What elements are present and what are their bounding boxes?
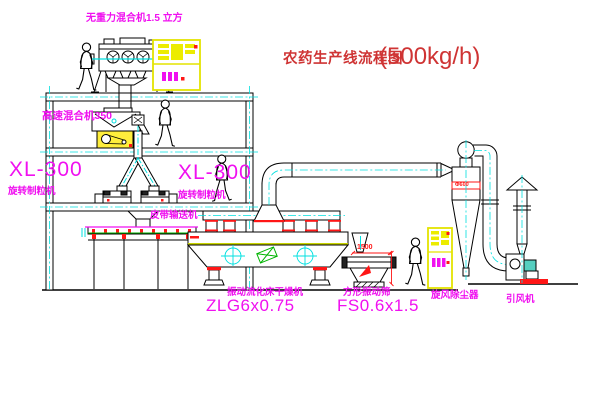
fluid-bed-dryer <box>188 232 348 285</box>
granulator-left <box>95 186 131 203</box>
label-granulator-left-model: XL-300 <box>9 159 83 180</box>
person-floor2 <box>155 100 175 146</box>
label-granulator-right-model: XL-300 <box>178 162 252 183</box>
induced-draft-fan <box>506 254 548 284</box>
belt-conveyor <box>82 227 198 289</box>
label-granulator-left-name: 旋转制粒机 <box>8 187 56 197</box>
person-ground <box>405 238 425 285</box>
label-gravity-free-mixer: 无重力混合机1.5 立方 <box>86 14 183 24</box>
control-cabinet-top <box>153 40 200 90</box>
label-cyclone: 旋风除尘器 <box>431 291 479 301</box>
granulator-right <box>141 186 177 203</box>
label-high-speed-mixer: 高速混合机350 <box>42 111 112 122</box>
label-belt-conveyor: 皮带输送机 <box>150 211 198 221</box>
square-sieve <box>342 233 396 287</box>
diagram-canvas: 无重力混合机1.5 立方 农药生产线流程图 (500kg/h) 高速混合机350… <box>0 0 600 403</box>
label-granulator-right-name: 旋转制粒机 <box>178 191 226 201</box>
control-cabinet-bottom <box>428 228 452 288</box>
label-fan: 引风机 <box>506 295 535 305</box>
diagram-title-capacity: (500kg/h) <box>379 45 480 69</box>
label-dryer-model: ZLG6x0.75 <box>206 297 295 314</box>
label-sieve-model: FS0.6x1.5 <box>337 297 419 314</box>
cyclone-separator <box>452 140 480 280</box>
dimension-sieve-width: 1500 <box>357 244 373 251</box>
dimension-cyclone-diameter: Φ600 <box>455 183 469 189</box>
person-roof <box>76 43 96 90</box>
